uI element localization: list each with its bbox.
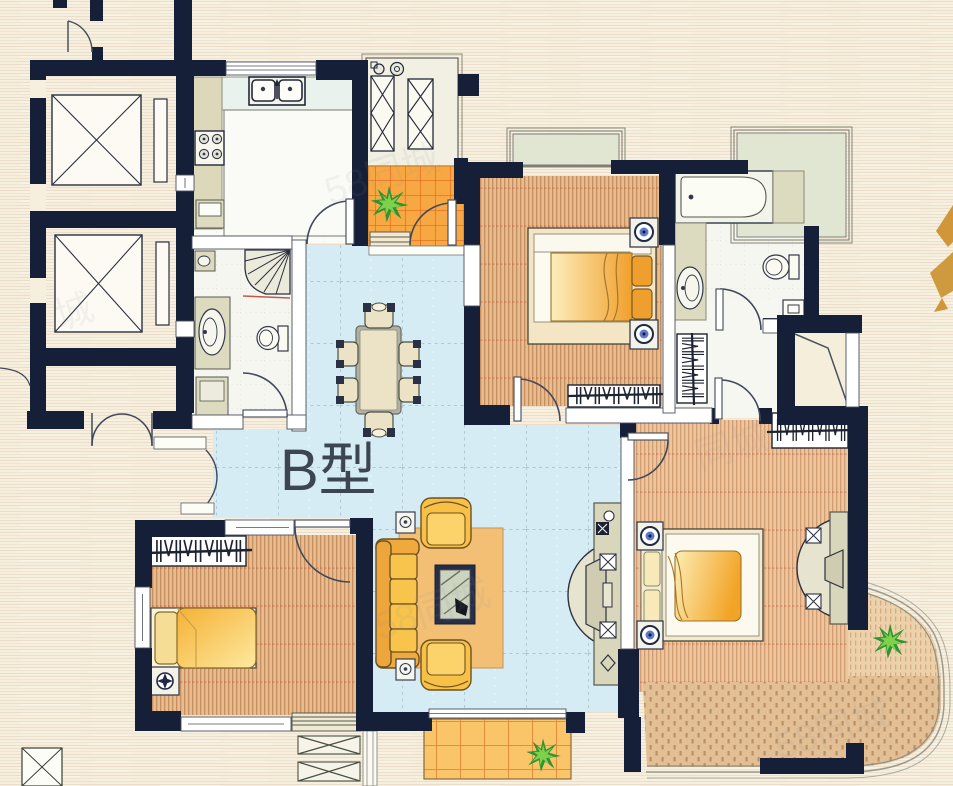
svg-text:B型: B型	[280, 438, 377, 503]
